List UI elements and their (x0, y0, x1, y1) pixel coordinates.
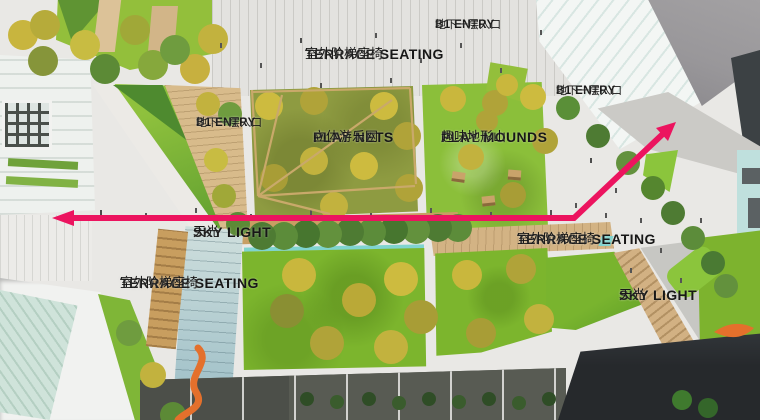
tree-top-right-lawn (496, 74, 518, 96)
facade-panel (748, 198, 760, 228)
lawn-bottom-centre-right (434, 248, 552, 358)
tree-cluster-dark-roof (672, 390, 692, 410)
tree-cluster-play-mounds (440, 86, 466, 112)
label-zh: 室外阶梯座椅 (517, 231, 595, 248)
label-zh: 地下一层入口 (196, 116, 262, 130)
label-zh: 地下一层入口 (556, 84, 622, 98)
lawn-bottom-centre (242, 248, 428, 370)
tree-cluster-lawn-br (452, 260, 482, 290)
roof-grid-structure (2, 100, 52, 150)
play-hut (482, 195, 496, 206)
people-top-plaza (300, 38, 302, 43)
label-zh: 趣味地形山 (441, 129, 506, 146)
tree-cluster-top-left (30, 10, 60, 40)
tree-cluster-bottom-left (116, 320, 142, 346)
tree-row-bottom (300, 392, 314, 406)
play-hut (508, 170, 522, 181)
tree-line-right-plaza (556, 96, 580, 120)
label-zh: 室外阶梯座椅 (120, 275, 198, 292)
building-left-mid (0, 215, 92, 281)
play-hut (451, 171, 465, 183)
label-zh: 室外阶梯座椅 (305, 46, 383, 63)
facade-panel (742, 168, 760, 184)
people-walkway (100, 210, 102, 215)
tree-cluster-terraces (196, 92, 220, 116)
label-zh: 天光 (619, 287, 645, 304)
paved-terrace-right (596, 92, 760, 210)
tree-cluster-lawn-bc (282, 258, 316, 292)
label-zh: 立体游乐网 (313, 129, 378, 146)
sand-wedge (148, 6, 178, 52)
building-bottom-right (556, 330, 760, 420)
label-zh: 地下一层入口 (435, 18, 501, 32)
lawn-triangle-right (643, 150, 681, 192)
people-right-plaza (590, 158, 592, 163)
masterplan-rendering: TERRACE SEATING 室外阶梯座椅 B1 ENTRY 地下一层入口 B… (0, 0, 760, 420)
label-zh: 天光 (193, 224, 219, 241)
